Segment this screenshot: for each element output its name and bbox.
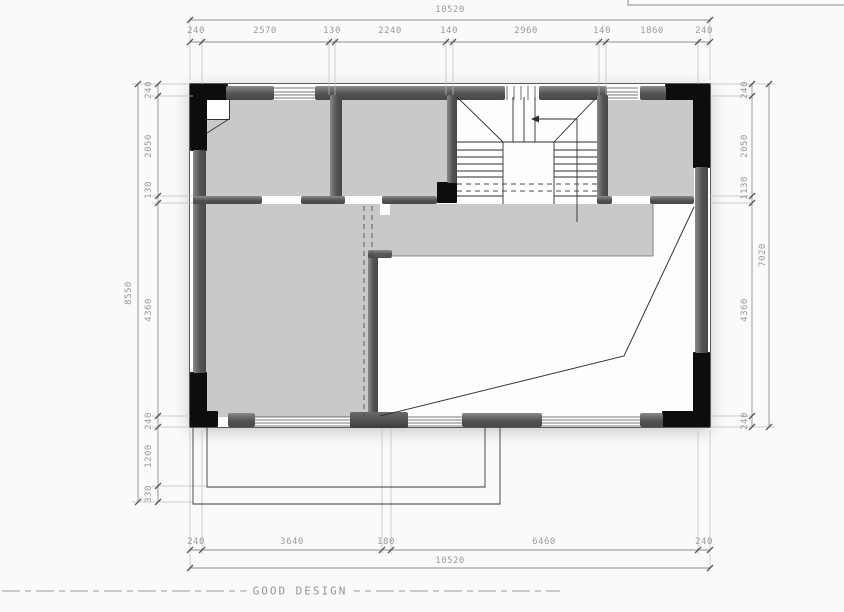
wall-top-d — [640, 86, 666, 100]
dim-label: 140 — [440, 26, 458, 36]
dim-label: 1130 — [740, 176, 750, 200]
dim-label: 240 — [144, 81, 154, 99]
wall-corner-bl-h — [190, 411, 218, 427]
dim-label: 180 — [377, 537, 395, 547]
wall-top-a — [226, 86, 274, 100]
door-leaf-symbol — [207, 97, 230, 120]
wall-bottom-b — [462, 413, 542, 427]
dim-label: 4360 — [144, 298, 154, 322]
wall-stair-right — [597, 95, 608, 203]
dim-label: 130 — [144, 181, 154, 199]
dim-label: 6460 — [532, 537, 556, 547]
wall-top-b — [315, 86, 505, 100]
door-opening-slot — [380, 204, 390, 215]
wall-bottom-c — [640, 413, 663, 427]
dim-label: 2240 — [378, 26, 402, 36]
wall-interior-h5 — [650, 196, 694, 204]
hallway-band — [375, 204, 653, 256]
dim-label: 240 — [740, 81, 750, 99]
floorplan-page: 10520 240 2570 130 2240 140 2960 140 186… — [0, 0, 844, 612]
wall-column-stair — [437, 182, 457, 203]
dim-label: 2960 — [514, 26, 538, 36]
dim-label: 240 — [740, 412, 750, 430]
entry-steps-outline — [193, 427, 500, 504]
dim-label: 240 — [144, 412, 154, 430]
dim-label-top-total: 10520 — [435, 5, 465, 15]
dim-label: 240 — [695, 26, 713, 36]
wall-corner-tr-v — [693, 84, 710, 168]
dim-label: 240 — [187, 537, 205, 547]
dim-label-bottom-total: 10520 — [435, 556, 465, 566]
wall-corner-tl-v — [190, 84, 207, 151]
dim-label: 1200 — [144, 444, 154, 468]
wall-left — [193, 150, 206, 373]
stairwell-area — [457, 100, 597, 204]
wall-divider-rooms — [330, 95, 342, 203]
dim-label: 1860 — [640, 26, 664, 36]
wall-bottom-tblock — [350, 412, 408, 428]
wall-corner-br-h — [662, 411, 710, 427]
wall-void-edge — [368, 250, 378, 417]
wall-void-jog — [368, 250, 392, 258]
footer-brand-text: GOOD DESIGN — [247, 585, 354, 598]
wall-interior-h4 — [597, 196, 612, 204]
dim-label-left-total: 8550 — [124, 281, 134, 305]
dim-label: 3640 — [280, 537, 304, 547]
dim-label-right-total: 7020 — [758, 243, 768, 267]
wall-right — [695, 167, 708, 353]
wall-interior-h2 — [301, 196, 345, 204]
dim-label: 2050 — [740, 134, 750, 158]
room-large-left — [206, 204, 375, 417]
dim-label: 130 — [323, 26, 341, 36]
dim-label: 240 — [695, 537, 713, 547]
wall-interior-h3 — [382, 196, 437, 204]
dim-label: 4360 — [740, 298, 750, 322]
wall-interior-h1 — [193, 196, 262, 204]
dim-label: 140 — [593, 26, 611, 36]
frame-corner-line — [628, 0, 844, 5]
dim-label: 2570 — [253, 26, 277, 36]
dim-label: 330 — [144, 485, 154, 503]
room-top-right — [608, 100, 694, 196]
dim-label: 2050 — [144, 134, 154, 158]
wall-stair-left — [447, 95, 457, 183]
wall-bottom-a — [228, 413, 255, 427]
room-top-middle — [342, 100, 447, 196]
dim-label: 240 — [187, 26, 205, 36]
